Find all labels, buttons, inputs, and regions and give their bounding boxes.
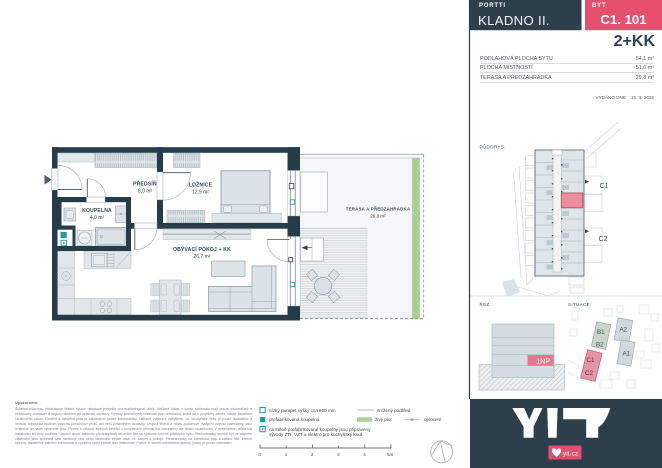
svg-text:29,8 m²: 29,8 m² [370, 214, 386, 219]
svg-text:LOŽNICE: LOŽNICE [189, 181, 213, 189]
svg-text:yit.cz: yit.cz [563, 451, 579, 458]
svg-text:PŮDORYS:: PŮDORYS: [480, 144, 506, 150]
svg-text:1: 1 [285, 452, 288, 457]
svg-text:C2: C2 [585, 370, 593, 377]
svg-text:4: 4 [363, 452, 366, 457]
svg-text:8,0 m²: 8,0 m² [138, 189, 153, 195]
svg-text:TERASA A PŘEDZAHRÁDKA: TERASA A PŘEDZAHRÁDKA [346, 207, 411, 212]
svg-text:3: 3 [337, 452, 340, 457]
svg-text:4,0 m²: 4,0 m² [90, 215, 105, 221]
svg-text:B1: B1 [597, 329, 605, 336]
svg-text:A1: A1 [623, 351, 631, 358]
svg-text:12,9 m²: 12,9 m² [192, 190, 209, 196]
svg-text:PŘEDSÍŇ: PŘEDSÍŇ [133, 180, 157, 188]
svg-text:A2: A2 [620, 327, 628, 334]
svg-text:B2: B2 [596, 342, 604, 349]
svg-text:2: 2 [311, 452, 314, 457]
svg-text:OBÝVACÍ POKOJ + KK: OBÝVACÍ POKOJ + KK [173, 245, 231, 253]
svg-text:C1: C1 [600, 183, 609, 190]
svg-text:SITUACE:: SITUACE: [568, 302, 592, 307]
svg-text:5m: 5m [387, 452, 394, 457]
svg-text:0: 0 [259, 452, 262, 457]
svg-text:26,7 m²: 26,7 m² [194, 254, 211, 260]
svg-text:C2: C2 [599, 236, 608, 243]
svg-text:C1: C1 [587, 357, 595, 364]
svg-text:ŘEZ:: ŘEZ: [480, 300, 492, 307]
svg-text:KOUPELNA: KOUPELNA [82, 208, 112, 214]
svg-text:1NP: 1NP [536, 358, 550, 365]
